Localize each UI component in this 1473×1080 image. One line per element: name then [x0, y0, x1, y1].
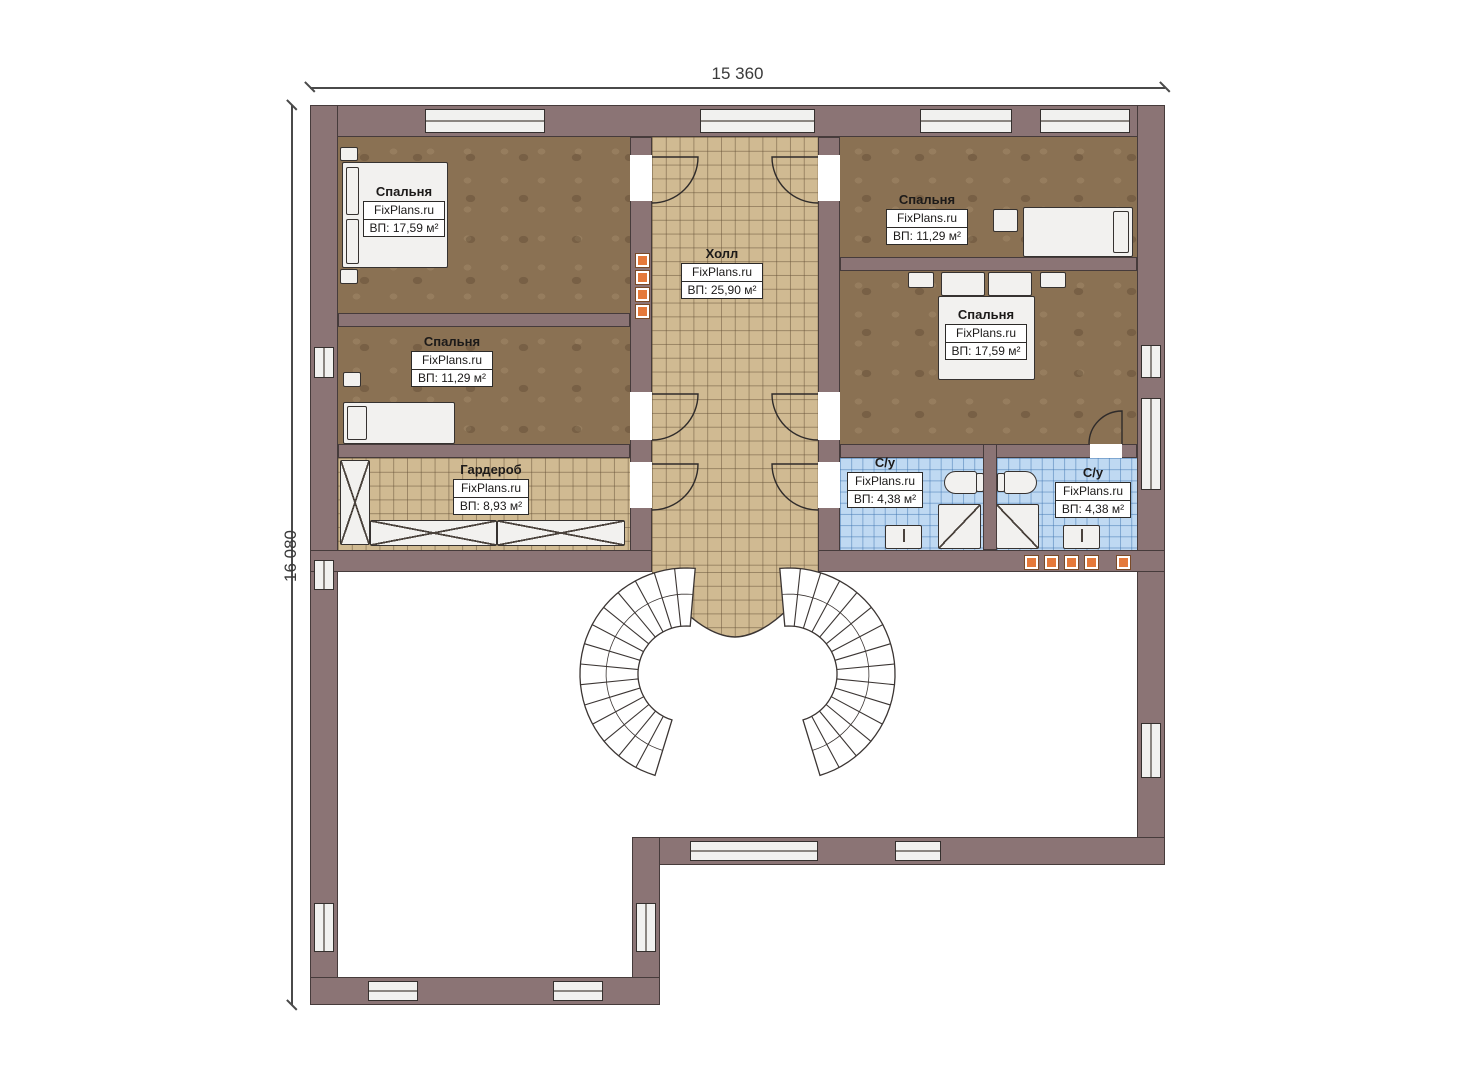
radiator-marker-icon [636, 254, 649, 267]
window [314, 560, 334, 590]
window [425, 109, 545, 133]
window [895, 841, 941, 861]
radiator-marker-icon [1045, 556, 1058, 569]
window [314, 347, 334, 378]
room-area: ВП: 4,38 м² [848, 491, 922, 507]
nightstand [1040, 272, 1066, 288]
brand-watermark: FixPlans.ru [887, 210, 967, 227]
floor-hall [652, 137, 818, 572]
door-opening [818, 462, 840, 508]
room-name: Спальня [958, 308, 1014, 322]
nightstand [993, 209, 1018, 232]
wardrobe-unit [497, 520, 625, 546]
door-opening [630, 392, 652, 440]
wardrobe-unit [370, 520, 497, 546]
room-name: Спальня [899, 193, 955, 207]
radiator-marker-icon [1065, 556, 1078, 569]
radiator-marker-icon [636, 271, 649, 284]
window [553, 981, 603, 1001]
wardrobe-unit [340, 460, 370, 545]
window [690, 841, 818, 861]
door-opening [818, 155, 840, 201]
nightstand [908, 272, 934, 288]
tap-icon [903, 529, 905, 542]
room-label-hall: Холл FixPlans.ru ВП: 25,90 м² [667, 247, 777, 299]
wall [338, 313, 630, 327]
room-label-bedroom-mid-left: Спальня FixPlans.ru ВП: 11,29 м² [397, 335, 507, 387]
window [636, 903, 656, 952]
pillow [1113, 211, 1129, 253]
room-area: ВП: 17,59 м² [364, 220, 445, 236]
door-opening [630, 155, 652, 201]
brand-watermark: FixPlans.ru [1056, 483, 1130, 500]
door-opening [1090, 444, 1122, 458]
room-label-wardrobe: Гардероб FixPlans.ru ВП: 8,93 м² [436, 463, 546, 515]
window [1040, 109, 1130, 133]
window [1141, 345, 1161, 378]
wall [310, 550, 652, 572]
wall [818, 550, 1165, 572]
nightstand [340, 147, 358, 161]
radiator-marker-icon [1117, 556, 1130, 569]
room-label-bedroom-mid-right: Спальня FixPlans.ru ВП: 17,59 м² [931, 308, 1041, 360]
door-opening [818, 392, 840, 440]
toilet [944, 471, 977, 494]
nightstand [343, 372, 361, 387]
brand-watermark: FixPlans.ru [412, 352, 492, 369]
radiator-marker-icon [636, 288, 649, 301]
nightstand [340, 269, 358, 284]
brand-watermark: FixPlans.ru [682, 264, 763, 281]
room-label-bedroom-top-right: Спальня FixPlans.ru ВП: 11,29 м² [872, 193, 982, 245]
radiator-marker-icon [1085, 556, 1098, 569]
room-area: ВП: 11,29 м² [412, 370, 492, 386]
room-area: ВП: 17,59 м² [946, 343, 1027, 359]
room-area: ВП: 25,90 м² [682, 282, 763, 298]
room-name: С/у [1083, 466, 1103, 480]
pillow [347, 406, 367, 440]
dimension-width-label: 15 360 [310, 64, 1165, 84]
toilet [1004, 471, 1037, 494]
room-name: Гардероб [460, 463, 521, 477]
brand-watermark: FixPlans.ru [946, 325, 1027, 342]
room-name: Спальня [424, 335, 480, 349]
window [368, 981, 418, 1001]
room-area: ВП: 8,93 м² [454, 498, 528, 514]
window [1141, 723, 1161, 778]
radiator-marker-icon [636, 305, 649, 318]
room-area: ВП: 11,29 м² [887, 228, 967, 244]
room-area: ВП: 4,38 м² [1056, 501, 1130, 517]
shower-tray [938, 504, 981, 549]
wall [338, 444, 630, 458]
room-label-bathroom-right: С/у FixPlans.ru ВП: 4,38 м² [1053, 466, 1133, 518]
dimension-line-top [310, 87, 1165, 89]
window [920, 109, 1012, 133]
floor-hall-landing [652, 572, 818, 640]
toilet-cistern [997, 473, 1005, 492]
pillow [988, 272, 1032, 296]
sink [1063, 525, 1100, 549]
brand-watermark: FixPlans.ru [848, 473, 922, 490]
window [314, 903, 334, 952]
room-name: Холл [706, 247, 739, 261]
tap-icon [1081, 529, 1083, 542]
window [700, 109, 815, 133]
room-name: Спальня [376, 185, 432, 199]
floor-plan: 15 360 16 080 [0, 0, 1473, 1080]
room-name: С/у [875, 456, 895, 470]
room-label-bedroom-top-left: Спальня FixPlans.ru ВП: 17,59 м² [349, 185, 459, 237]
wall [310, 977, 660, 1005]
window [1141, 398, 1161, 490]
wall [840, 257, 1137, 271]
pillow [941, 272, 985, 296]
radiator-marker-icon [1025, 556, 1038, 569]
dimension-height-label: 16 080 [281, 511, 301, 601]
sink [885, 525, 922, 549]
brand-watermark: FixPlans.ru [364, 202, 445, 219]
room-label-bathroom-left: С/у FixPlans.ru ВП: 4,38 м² [845, 456, 925, 508]
brand-watermark: FixPlans.ru [454, 480, 528, 497]
shower-tray [996, 504, 1039, 549]
wall [983, 444, 997, 550]
door-opening [630, 462, 652, 508]
